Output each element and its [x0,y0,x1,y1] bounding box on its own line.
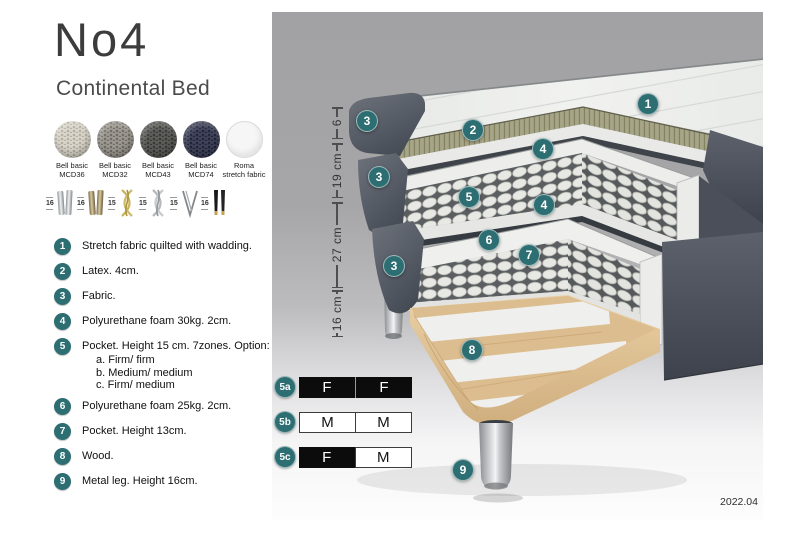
firmness-option-5b: 5b M M [274,411,412,433]
firmness-badge: 5b [274,411,296,433]
spec-text: Metal leg. Height 16cm. [82,473,198,490]
badge-4-foam-upper: 4 [532,138,554,160]
fabric-swatch: Bell basicMCD36 [52,121,92,179]
leg-height: 16 [46,200,54,207]
firmness-badge: 5a [274,376,296,398]
leg-height: 15 [170,200,178,207]
spec-text: Latex. 4cm. [82,263,139,280]
leg-option: 16 [77,187,108,219]
spec-item-7: 7 Pocket. Height 13cm. [54,423,279,440]
page-title: No4 [54,12,149,67]
hairpin-leg-icon [179,187,201,219]
spec-number-badge: 5 [54,338,71,355]
spec-option: a. Firm/ firm [96,354,279,367]
badge-1-stretch-fabric: 1 [637,93,659,115]
badge-7-pocket: 7 [518,244,540,266]
dimension-label: 6 [330,119,344,126]
fabric-swatch-label: Romastretch fabric [223,161,266,179]
spec-text: Stretch fabric quilted with wadding. [82,238,252,255]
fabric-swatch: Bell basicMCD43 [138,121,178,179]
leg-option: 15 [139,187,170,219]
badge-4-foam-lower: 4 [533,194,555,216]
fabric-swatch-image [226,121,263,158]
fabric-swatch-label: Bell basicMCD43 [142,161,174,179]
spec-number-badge: 2 [54,263,71,280]
firmness-cell: M [355,447,413,468]
spec-text: Wood. [82,448,114,465]
spec-text: Pocket. Height 13cm. [82,423,187,440]
dimension-16cm: 16 cm [324,290,350,337]
spec-text: Pocket. Height 15 cm. 7zones. Option: [82,338,270,355]
silver-twisted-legs-icon [148,187,168,219]
spec-item-3: 3 Fabric. [54,288,279,305]
spec-number-badge: 9 [54,473,71,490]
leg-options: 16 16 15 15 15 [46,187,232,219]
gold-twisted-legs-icon [117,187,137,219]
dimension-27cm: 27 cm [324,202,350,288]
fabric-swatch-label: Bell basicMCD32 [99,161,131,179]
spec-text: Polyurethane foam 25kg. 2cm. [82,398,231,415]
badge-6-foam: 6 [478,229,500,251]
spec-item-2: 2 Latex. 4cm. [54,263,279,280]
badge-3-fabric-middle: 3 [368,166,390,188]
leg-height: 16 [77,200,85,207]
fabric-swatch: Bell basicMCD32 [95,121,135,179]
firmness-cell: M [356,412,412,433]
leg-height: 16 [201,200,209,207]
brass-cylinder-legs-icon [86,187,106,219]
chrome-cylinder-legs-icon [55,187,75,219]
black-tapered-legs-icon [210,187,230,219]
fabric-swatches: Bell basicMCD36 Bell basicMCD32 Bell bas… [52,121,264,179]
firmness-cell: M [299,412,356,433]
spec-text: Fabric. [82,288,116,305]
dimension-label: 19 cm [330,153,344,188]
spec-item-8: 8 Wood. [54,448,279,465]
badge-9-metal-leg: 9 [452,459,474,481]
fabric-swatch-image [54,121,91,158]
firmness-bar: F F [299,377,412,398]
leg-height: 15 [139,200,147,207]
spec-item-5-options: a. Firm/ firm b. Medium/ medium c. Firm/… [96,354,279,392]
firmness-bar: M M [299,412,412,433]
spec-option: c. Firm/ medium [96,379,279,392]
badge-3-fabric-top: 3 [356,110,378,132]
badge-2-latex: 2 [462,119,484,141]
dimension-label: 16 cm [330,296,344,331]
badge-8-wood: 8 [461,339,483,361]
firmness-badge: 5c [274,446,296,468]
spec-number-badge: 4 [54,313,71,330]
fabric-swatch: Bell basicMCD74 [181,121,221,179]
badge-3-fabric-bottom: 3 [383,255,405,277]
bed-diagram-panel: 1 2 3 4 3 5 4 6 7 3 8 9 6 19 cm 27 cm 16… [272,12,763,520]
leg-option: 15 [108,187,139,219]
spec-number-badge: 6 [54,398,71,415]
spec-text: Polyurethane foam 30kg. 2cm. [82,313,231,330]
fabric-swatch-label: Bell basicMCD36 [56,161,88,179]
spec-item-6: 6 Polyurethane foam 25kg. 2cm. [54,398,279,415]
leg-height: 15 [108,200,116,207]
fabric-swatch-image [97,121,134,158]
spec-item-1: 1 Stretch fabric quilted with wadding. [54,238,279,255]
fabric-swatch-label: Bell basicMCD74 [185,161,217,179]
spec-item-4: 4 Polyurethane foam 30kg. 2cm. [54,313,279,330]
spec-number-badge: 1 [54,238,71,255]
spec-number-badge: 3 [54,288,71,305]
leg-option: 15 [170,187,201,219]
spec-option: b. Medium/ medium [96,367,279,380]
firmness-option-5a: 5a F F [274,376,412,398]
spec-number-badge: 8 [54,448,71,465]
firmness-cell: F [299,377,355,398]
version-label: 2022.04 [720,496,758,508]
badge-5-pocket: 5 [458,186,480,208]
fabric-swatch-image [183,121,220,158]
dimension-label: 27 cm [330,227,344,262]
leg-option: 16 [46,187,77,219]
page-subtitle: Continental Bed [56,77,210,101]
spec-number-badge: 7 [54,423,71,440]
dimension-6: 6 [324,107,350,139]
fabric-swatch-image [140,121,177,158]
spec-item-9: 9 Metal leg. Height 16cm. [54,473,279,490]
firmness-option-5c: 5c F M [274,446,412,468]
fabric-swatch: Romastretch fabric [224,121,264,179]
leg-option: 16 [201,187,232,219]
firmness-cell: F [299,447,355,468]
spec-list: 1 Stretch fabric quilted with wadding. 2… [54,238,279,498]
spec-item-5: 5 Pocket. Height 15 cm. 7zones. Option: [54,338,279,355]
firmness-cell: F [355,377,412,398]
dimension-19cm: 19 cm [324,143,350,198]
firmness-bar: F M [299,447,412,468]
